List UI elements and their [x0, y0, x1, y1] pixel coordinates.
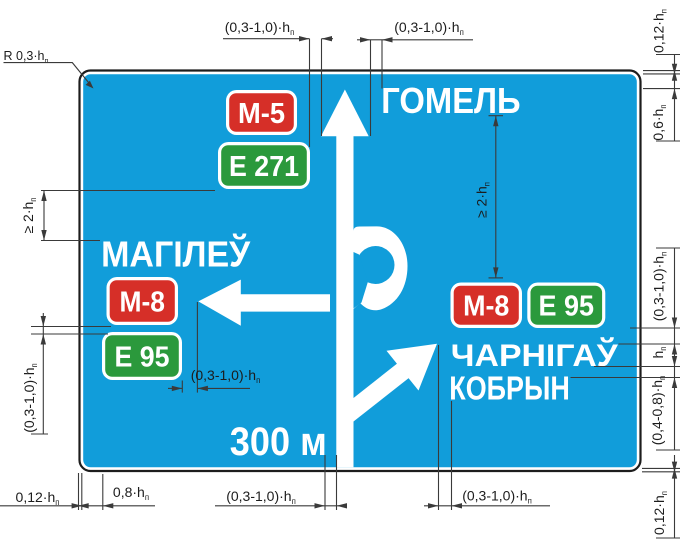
- svg-text:(0,4-0,8)·hп: (0,4-0,8)·hп: [649, 376, 667, 446]
- svg-text:0,12·hп: 0,12·hп: [651, 491, 669, 535]
- svg-text:300 м: 300 м: [230, 420, 327, 464]
- svg-text:Е 95: Е 95: [539, 291, 595, 323]
- svg-text:(0,3-1,0)·hп: (0,3-1,0)·hп: [226, 488, 296, 506]
- svg-text:0,12·hп: 0,12·hп: [651, 9, 669, 53]
- svg-text:М-5: М-5: [238, 98, 285, 130]
- svg-text:≥ 2·hп: ≥ 2·hп: [20, 197, 38, 233]
- svg-text:Е 271: Е 271: [229, 151, 299, 183]
- svg-text:МАГІЛЕЎ: МАГІЛЕЎ: [101, 232, 251, 274]
- svg-text:(0,3-1,0)·hп: (0,3-1,0)·hп: [462, 488, 532, 506]
- svg-text:ГОМЕЛЬ: ГОМЕЛЬ: [381, 80, 520, 121]
- svg-text:≥ 2·hп: ≥ 2·hп: [474, 182, 492, 218]
- svg-text:М-8: М-8: [463, 291, 509, 323]
- svg-text:(0,3-1,0)·hп: (0,3-1,0)·hп: [191, 367, 261, 385]
- svg-text:0,6·hп: 0,6·hп: [650, 104, 668, 140]
- svg-text:hп: hп: [650, 346, 668, 358]
- svg-text:ЧАРНІГАЎ: ЧАРНІГАЎ: [451, 337, 618, 373]
- svg-text:(0,3-1,0)·hп: (0,3-1,0)·hп: [21, 363, 39, 433]
- svg-text:(0,3-1,0)·hп: (0,3-1,0)·hп: [225, 19, 295, 37]
- svg-text:КОБРЫН: КОБРЫН: [449, 369, 570, 406]
- svg-text:(0,3-1,0)·hп: (0,3-1,0)·hп: [394, 19, 464, 37]
- svg-text:0,8·hп: 0,8·hп: [113, 484, 149, 502]
- svg-text:0,12·hп: 0,12·hп: [16, 489, 60, 507]
- svg-text:Е 95: Е 95: [115, 341, 170, 373]
- svg-text:М-8: М-8: [120, 286, 166, 318]
- svg-text:(0,3-1,0)·hп: (0,3-1,0)·hп: [651, 252, 669, 322]
